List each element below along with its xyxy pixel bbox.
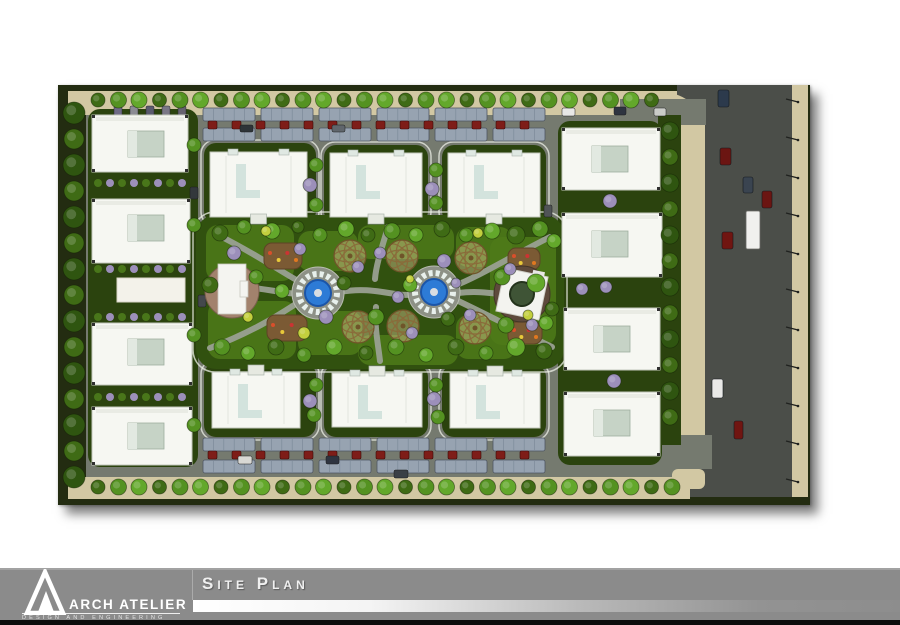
tree-highlight [66,365,76,375]
tree-highlight [666,481,673,488]
tree-highlight [174,94,181,101]
parked-red-car [472,451,481,459]
shrub [154,265,162,273]
street-light-pole [797,253,800,256]
parked-red-car [304,121,313,129]
tree-highlight [524,95,530,101]
road-car [734,421,743,439]
tree-highlight [133,481,140,488]
tree-highlight [67,392,76,401]
tree-highlight [585,482,591,488]
tree-highlight [245,314,250,319]
tree-highlight [363,230,369,236]
building [212,372,300,428]
tree-highlight [311,160,317,166]
shrub [154,393,162,401]
roof-tab [228,149,238,155]
shrub [178,179,186,187]
tree-highlight [431,198,437,204]
shrub [166,393,174,401]
tree-highlight [67,132,76,141]
roof-tab [348,150,358,156]
shrub [94,179,102,187]
fountain-sphere [430,288,438,296]
corner-tick [92,115,95,118]
parking-canopy [435,108,487,121]
tree-highlight [300,329,305,334]
roof-tab [468,370,478,376]
parked-red-car [352,451,361,459]
west-pavilion-wing [240,281,248,297]
tree-highlight [585,95,591,101]
shrub [142,313,150,321]
corner-tick [92,169,95,172]
street-light-pole [797,215,800,218]
tree-highlight [370,311,377,318]
road-car [722,232,733,249]
corner-tick [92,462,95,465]
tree-highlight [436,223,443,230]
tree-highlight [510,341,518,349]
tree-highlight [543,481,550,488]
tree-highlight [664,177,672,185]
stair-core [487,366,503,376]
footer-divider [192,570,193,600]
tree-highlight [386,225,393,232]
play-equipment [280,330,284,334]
building [450,373,540,428]
tree-highlight [543,94,550,101]
building-parapet [566,130,656,134]
parked-red-car [208,121,217,129]
tree-highlight [251,272,257,278]
shrub [142,265,150,273]
building-parapet [568,310,656,314]
road-car [720,148,731,165]
play-equipment [290,323,294,327]
tree-highlight [195,481,202,488]
parked-red-car [448,121,457,129]
shrub [94,265,102,273]
tree-highlight [339,95,345,101]
tree-highlight [305,180,311,186]
play-equipment [525,254,529,258]
roof-tab [279,149,289,155]
tree-highlight [502,481,509,488]
corner-tick [185,169,188,172]
tree-highlight [354,263,359,268]
road-car [712,379,723,398]
tree-highlight [482,481,489,488]
tree-highlight [66,417,76,427]
corner-tick [92,260,95,263]
tree-highlight [453,280,458,285]
tree-highlight [664,255,671,262]
play-equipment [512,254,516,258]
tree-highlight [664,281,672,289]
tree-highlight [502,94,509,101]
tree-highlight [113,481,120,488]
tree-highlight [361,348,367,354]
tree-highlight [318,94,325,101]
aisle-car [562,108,575,116]
parking-canopy [261,438,313,451]
shrub [166,179,174,187]
building-parapet [96,117,184,121]
tree-highlight [133,94,140,101]
parked-red-car [520,451,529,459]
parked-red-car [280,451,289,459]
logo-name: ARCH ATELIER [69,597,187,612]
corner-tick [187,199,190,202]
tree-highlight [647,95,653,101]
stair-core [486,214,502,224]
tree-highlight [189,140,195,146]
fountain-sphere [314,289,322,297]
building-parapet [96,409,188,413]
tree-highlight [664,333,672,341]
tree-highlight [67,288,76,297]
tree-highlight [155,95,161,101]
building-parapet [96,201,186,205]
tree-highlight [67,236,76,245]
parking-canopy [435,460,487,473]
tree-highlight [664,203,671,210]
tree-highlight [340,223,347,230]
tree-highlight [155,482,161,488]
site-plan-image [58,85,810,505]
corner-tick [657,367,660,370]
tree-highlight [411,230,417,236]
tree-highlight [277,286,283,292]
corner-tick [92,323,95,326]
page-title: Site Plan [202,574,309,594]
tree-highlight [66,209,76,219]
tree-highlight [67,184,76,193]
parking-canopy [319,438,371,451]
shrub [154,313,162,321]
play-equipment [519,335,523,339]
roof-cube-highlight [594,326,603,352]
shrub [106,179,114,187]
tree-highlight [443,314,449,320]
tree-highlight [278,95,284,101]
shrub [130,265,138,273]
tree-highlight [236,481,243,488]
tree-highlight [441,94,448,101]
tree-highlight [67,340,76,349]
roof-tab [512,370,522,376]
tree-highlight [339,278,345,284]
tree-highlight [605,196,611,202]
roof-tab [230,369,240,375]
tree-highlight [66,105,76,115]
tree-highlight [401,482,407,488]
dome-apex [473,326,478,331]
arch-atelier-logo-icon [23,569,67,615]
tree-highlight [216,341,223,348]
tree-highlight [66,157,76,167]
corner-tick [562,187,565,190]
roof-cube-highlight [128,131,137,157]
tree-highlight [113,94,120,101]
tree-highlight [379,94,386,101]
tree-highlight [510,229,518,237]
corner-tick [564,392,567,395]
tree-highlight [195,94,202,101]
shrub [94,313,102,321]
tree-highlight [376,249,381,254]
parked-red-car [496,121,505,129]
tree-highlight [394,293,399,298]
tree-highlight [294,223,299,228]
tree-highlight [379,481,386,488]
dome-apex [401,324,406,329]
tree-highlight [67,444,76,453]
street-light-pole [797,139,800,142]
tree-highlight [496,271,503,278]
building-parapet [96,325,188,329]
tree-highlight [243,348,249,354]
shrub [106,313,114,321]
tree-highlight [602,283,607,288]
tree-highlight [664,385,672,393]
parked-red-car [352,121,361,129]
roof-tab [394,370,404,376]
parked-red-car [208,451,217,459]
roof-cube-highlight [594,410,603,436]
tree-highlight [647,482,653,488]
parked-red-car [424,451,433,459]
street-light-pole [797,177,800,180]
tree-highlight [524,482,530,488]
tree-highlight [664,229,672,237]
parking-canopy [493,108,545,121]
parked-red-car [448,451,457,459]
shrub [166,313,174,321]
corner-tick [562,213,565,216]
shrub [130,179,138,187]
tree-highlight [431,380,437,386]
play-equipment [271,323,275,327]
tree-highlight [174,481,181,488]
shrub [130,313,138,321]
roof-tab [512,150,522,156]
corner-tick [562,128,565,131]
play-equipment [519,261,523,265]
tree-highlight [429,394,435,400]
street-light-pole [797,329,800,332]
corner-tick [189,382,192,385]
play-equipment [532,261,536,265]
parking-canopy [377,438,429,451]
tree-highlight [297,94,304,101]
corner-tick [187,260,190,263]
parked-red-car [232,121,241,129]
building [210,152,307,217]
tree-highlight [525,312,530,317]
shrub [130,393,138,401]
tree-highlight [534,223,541,230]
tree-highlight [664,125,672,133]
corner-tick [564,308,567,311]
tree-highlight [390,341,397,348]
building-parapet [568,394,656,398]
tree-highlight [311,380,317,386]
corner-tick [659,213,662,216]
aisle-car [614,107,626,115]
corner-tick [657,392,660,395]
tree-highlight [236,94,243,101]
roof-cube-highlight [592,231,601,257]
tree-highlight [420,94,427,101]
tree-highlight [270,341,277,348]
corner-tick [189,323,192,326]
tree-highlight [528,321,533,326]
tree-highlight [305,396,311,402]
tree-highlight [506,265,511,270]
tree-highlight [439,256,445,262]
play-equipment [534,335,538,339]
street-light-pole [797,101,800,104]
tree-highlight [66,469,76,479]
bus [746,211,760,249]
aisle-car [654,108,666,116]
tree-highlight [564,94,571,101]
stair-core [369,366,385,376]
parked-red-car [376,451,385,459]
tree-highlight [578,285,583,290]
tree-highlight [263,228,268,233]
tree-highlight [256,481,263,488]
tree-highlight [321,312,327,318]
parking-canopy [493,128,545,141]
tree-highlight [256,94,263,101]
corner-tick [189,462,192,465]
street-light-pole [797,481,800,484]
corner-tick [657,128,660,131]
parked-red-car [424,121,433,129]
stair-core [248,365,264,375]
tree-highlight [431,165,437,171]
corner-tick [659,274,662,277]
corner-tick [657,453,660,456]
parking-canopy [261,460,313,473]
tree-highlight [339,482,345,488]
shrub [118,393,126,401]
tree-highlight [609,376,615,382]
tree-highlight [605,481,612,488]
aisle-car [238,456,252,464]
tree-highlight [625,481,632,488]
parking-canopy [493,438,545,451]
tree-highlight [318,481,325,488]
title-underline-bar [193,600,900,612]
shrub [142,393,150,401]
corner-tick [185,115,188,118]
tree-highlight [407,276,411,280]
tree-highlight [549,236,555,242]
tree-highlight [664,411,671,418]
roof-cube-highlight [128,339,137,365]
shrub [94,393,102,401]
tree-highlight [450,341,457,348]
shrub [118,313,126,321]
roof-cube-highlight [592,146,601,172]
parking-canopy [493,460,545,473]
parked-red-car [256,451,265,459]
tree-highlight [315,230,321,236]
inner-road-car [198,295,206,307]
court-plot [117,278,185,302]
parking-canopy [203,108,255,121]
dome-apex [400,254,405,259]
inner-road-car [544,205,552,217]
play-equipment [294,258,298,262]
shrub [178,265,186,273]
parked-red-car [472,121,481,129]
parked-red-car [304,451,313,459]
tree-highlight [541,318,547,324]
corner-tick [92,382,95,385]
tree-highlight [664,151,671,158]
tree-highlight [204,279,211,286]
tree-highlight [311,200,317,206]
parking-canopy [435,438,487,451]
parking-canopy [435,128,487,141]
tree-highlight [482,94,489,101]
shrub [166,265,174,273]
tree-highlight [427,184,433,190]
tree-highlight [664,359,671,366]
tree-highlight [189,420,195,426]
tree-highlight [564,481,571,488]
tree-highlight [66,313,76,323]
street-light-pole [797,291,800,294]
shrub [178,393,186,401]
building [448,153,540,217]
corner-tick [657,308,660,311]
parked-red-car [520,121,529,129]
tree-highlight [93,482,99,488]
aisle-car [394,470,408,478]
corner-tick [657,187,660,190]
tree-highlight [239,222,245,228]
parked-red-car [496,451,505,459]
corner-tick [564,453,567,456]
tree-highlight [664,307,671,314]
tree-highlight [299,350,305,356]
parked-red-car [400,451,409,459]
play-equipment [285,251,289,255]
shrub [142,179,150,187]
building [330,153,422,217]
tree-highlight [475,230,480,235]
road-car [718,90,729,107]
tree-highlight [189,330,195,336]
aisle-car [326,456,339,464]
shrub [106,265,114,273]
tree-highlight [408,329,413,334]
tree-highlight [538,345,545,352]
tree-highlight [214,227,221,234]
aisle-car [240,125,253,132]
tree-highlight [441,481,448,488]
west-road-sidewalk [681,119,705,441]
road-car [743,177,753,193]
shrub [178,313,186,321]
tree-highlight [547,304,553,310]
